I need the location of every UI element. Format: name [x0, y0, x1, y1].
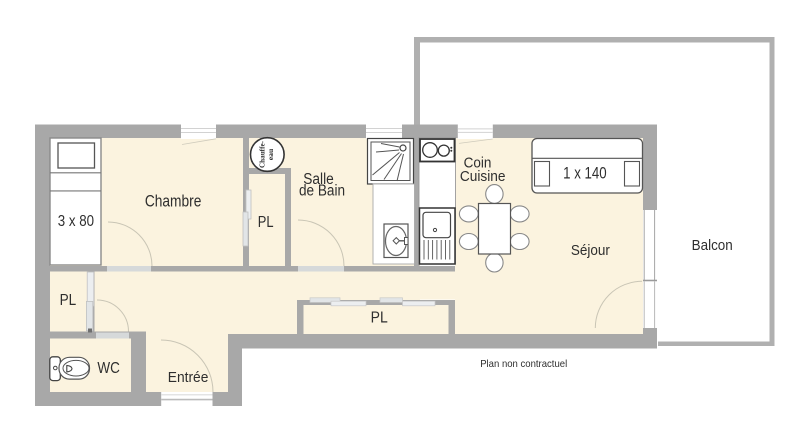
- svg-text:Chambre: Chambre: [145, 193, 202, 211]
- svg-text:PL: PL: [371, 310, 388, 327]
- svg-text:PL: PL: [258, 214, 274, 231]
- svg-text:Entrée: Entrée: [168, 370, 209, 386]
- svg-text:eau: eau: [266, 149, 275, 161]
- svg-text:de Bain: de Bain: [299, 183, 345, 200]
- svg-text:WC: WC: [97, 360, 120, 377]
- svg-text:Cuisine: Cuisine: [460, 168, 506, 185]
- svg-text:Plan non contractuel: Plan non contractuel: [480, 358, 567, 370]
- svg-text:Balcon: Balcon: [692, 237, 733, 254]
- svg-text:3 x 80: 3 x 80: [58, 213, 95, 230]
- svg-text:PL: PL: [60, 292, 77, 309]
- svg-text:Séjour: Séjour: [571, 242, 610, 259]
- svg-text:1 x 140: 1 x 140: [563, 164, 607, 183]
